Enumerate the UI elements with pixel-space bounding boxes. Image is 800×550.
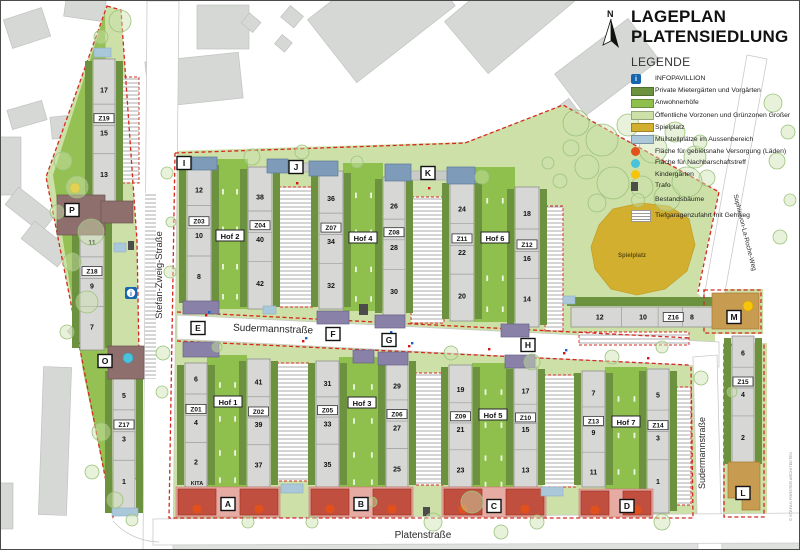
legend-swatch-rect-icon <box>631 87 655 97</box>
z-label: Z06 <box>391 411 403 418</box>
entry-dot <box>563 352 565 354</box>
house-number: 40 <box>256 237 264 244</box>
legend-item: Müllstellplätze im Aussenbereich <box>631 135 797 145</box>
building-strip-z01: 6Z0142 <box>177 363 215 487</box>
legend-swatch-tree-icon <box>631 193 655 207</box>
private-garden-strip <box>308 363 315 485</box>
tree-icon <box>351 156 363 168</box>
street-label: Platenstraße <box>395 530 452 541</box>
house-number: 37 <box>255 463 263 470</box>
building-strip-z02: 41Z023937 <box>239 359 278 487</box>
building-strip-z06: 29Z062725 <box>378 359 416 487</box>
private-garden-strip <box>473 367 480 485</box>
house-number: 8 <box>197 274 201 281</box>
building-strip-z19: 17Z191513 <box>85 59 123 207</box>
marker-c: C <box>487 500 501 513</box>
private-garden-strip <box>105 371 112 513</box>
north-label: N <box>607 9 614 19</box>
private-garden-strip <box>506 369 513 485</box>
house-number: 6 <box>741 350 745 357</box>
entry-dot <box>411 342 413 344</box>
svg-text:D: D <box>624 501 630 511</box>
credit-text: © STEFAN FORSTER ARCHITEKTEN <box>788 452 793 521</box>
house-number: 9 <box>90 284 94 291</box>
legend-item: Fläche für gebietsnahe Versorgung (Läden… <box>631 147 797 156</box>
title-block: LAGEPLAN PLATENSIEDLUNG LEGENDE iINFOPAV… <box>631 7 797 225</box>
legend-item-label: Trafo <box>655 182 671 190</box>
house-number: 27 <box>393 426 401 433</box>
house-number: 41 <box>255 380 263 387</box>
tree-icon <box>242 516 254 528</box>
legend-item: Fläche für Nachbarschaftstreff <box>631 159 797 168</box>
building-strip-z16: 1210Z168 <box>571 307 715 327</box>
house-number: 28 <box>390 245 398 252</box>
tree-icon <box>126 514 138 526</box>
legend-item-label: Fläche für gebietsnahe Versorgung (Läden… <box>655 148 786 156</box>
tree-icon <box>54 152 72 170</box>
svg-text:O: O <box>102 356 109 366</box>
retail-dot <box>521 505 530 514</box>
private-garden-strip <box>475 183 482 319</box>
tree-icon <box>461 491 483 513</box>
private-garden-strip <box>239 361 246 485</box>
marker-m: M <box>727 311 741 324</box>
tree-icon <box>563 140 579 156</box>
marker-p: P <box>65 204 79 217</box>
kindergarten-dot <box>743 301 753 311</box>
marker-o: O <box>98 355 112 368</box>
house-number: 7 <box>592 391 596 398</box>
svg-text:F: F <box>330 329 335 339</box>
z-label: Z03 <box>193 219 205 226</box>
tree-icon <box>166 217 176 227</box>
z-label: Z02 <box>253 409 265 416</box>
house-number: 21 <box>457 427 465 434</box>
building-strip-z07: 36Z073432 <box>311 171 351 309</box>
entry-dot <box>296 182 298 184</box>
tree-icon <box>588 194 606 212</box>
z-label: Z07 <box>325 225 337 232</box>
z-label: Z04 <box>254 223 266 230</box>
marker-h: H <box>521 339 535 352</box>
house-number: 12 <box>596 315 604 322</box>
legend-item: Trafo <box>631 182 797 191</box>
building-strip-z11: 24Z112220 <box>442 181 482 321</box>
marker-d: D <box>620 500 634 513</box>
private-garden-strip <box>271 361 278 485</box>
z-label: Z13 <box>588 418 600 425</box>
tree-icon <box>76 291 98 313</box>
private-garden-strip <box>311 173 318 307</box>
legend-swatch-circle-icon <box>631 147 655 156</box>
legend-swatch-small-icon <box>631 182 655 191</box>
svg-text:H: H <box>525 340 531 350</box>
marker-e: E <box>191 322 205 335</box>
marker-b: B <box>354 498 368 511</box>
legend-heading: LEGENDE <box>631 55 797 69</box>
tree-icon <box>656 341 668 353</box>
legend-item: Spielplatz <box>631 123 797 133</box>
z-label: Z18 <box>86 269 98 276</box>
tree-icon <box>542 157 554 169</box>
tree-icon <box>424 513 442 531</box>
legend-item: Tiefgaragenzufahrt mit Gehweg <box>631 210 797 222</box>
house-number: 34 <box>327 239 335 246</box>
house-number: 14 <box>523 297 531 304</box>
building-strip-z12: 18Z121614 <box>507 187 547 327</box>
svg-text:K: K <box>425 168 432 178</box>
tree-icon <box>161 167 173 179</box>
z-label: Z11 <box>457 236 468 243</box>
legend-item: Kindergärten <box>631 170 797 179</box>
z-label: Z15 <box>737 379 749 386</box>
tree-icon <box>586 124 618 156</box>
house-number: 2 <box>194 460 198 467</box>
house-number: 31 <box>324 381 332 388</box>
area-label-spielplatz: Spielplatz <box>618 253 646 259</box>
legend-item-label: Anwohnerhöfe <box>655 99 699 107</box>
legend-item-label: Private Mietergärten und Vorgärten <box>655 87 761 95</box>
private-garden-strip <box>179 165 186 303</box>
plan-title-line1: LAGEPLAN <box>631 7 797 27</box>
hof-label-hof1: Hof 1 <box>214 396 242 407</box>
hof-label-hof3: Hof 3 <box>348 397 376 408</box>
house-number: 5 <box>122 393 126 400</box>
building-strip-z15: 6Z1542 <box>724 336 762 466</box>
legend-item: Private Mietergärten und Vorgärten <box>631 87 797 97</box>
house-number: 22 <box>458 250 466 257</box>
svg-text:Hof 7: Hof 7 <box>617 418 636 427</box>
legend-swatch-rect-icon <box>631 123 655 133</box>
building-strip-z09: 19Z092123 <box>441 365 480 487</box>
private-garden-strip <box>507 189 514 325</box>
marker-f: F <box>326 328 340 341</box>
legend-item-label: Öffentliche Vorzonen und Grünzonen Große… <box>655 112 790 120</box>
entry-dot <box>208 311 210 313</box>
legend-item-label: Spielplatz <box>655 124 684 132</box>
private-garden-strip <box>378 361 385 485</box>
tree-icon <box>244 149 260 165</box>
private-garden-strip <box>442 183 449 319</box>
tree-icon <box>494 525 508 539</box>
building-strip-z10: 17Z101513 <box>506 367 545 487</box>
building-strip-z08: 26Z082830 <box>375 177 413 315</box>
tree-icon <box>109 10 131 32</box>
private-garden-strip <box>540 189 547 325</box>
tree-icon <box>563 110 589 136</box>
house-number: 15 <box>522 427 530 434</box>
head-building-k-east <box>447 167 475 184</box>
house-number: 39 <box>255 422 263 429</box>
tree-icon <box>94 30 108 44</box>
tree-icon <box>654 514 670 530</box>
z-label: Z14 <box>652 423 664 430</box>
house-number: 5 <box>656 392 660 399</box>
tree-icon <box>78 219 104 245</box>
area-label-kita: KITA <box>191 481 203 487</box>
tree-icon <box>156 346 170 360</box>
legend-item-label: Tiefgaragenzufahrt mit Gehweg <box>655 212 750 220</box>
svg-text:B: B <box>358 499 364 509</box>
entry-dot <box>408 345 410 347</box>
garden-strip-z16 <box>567 297 717 306</box>
entry-dot <box>205 314 207 316</box>
house-number: 12 <box>195 187 203 194</box>
svg-text:J: J <box>294 162 299 172</box>
svg-text:i: i <box>130 291 132 298</box>
svg-text:A: A <box>225 499 231 509</box>
private-garden-strip <box>538 369 545 485</box>
z-label: Z08 <box>388 230 400 237</box>
tree-icon <box>212 342 222 352</box>
z-label: Z05 <box>322 408 334 415</box>
svg-text:M: M <box>730 312 737 322</box>
house-number: 1 <box>656 479 660 486</box>
head-building-i <box>192 157 217 170</box>
legend-item: Öffentliche Vorzonen und Grünzonen Große… <box>631 111 797 121</box>
tree-icon <box>164 266 176 278</box>
house-number: 1 <box>122 479 126 486</box>
head-building-j-east <box>309 161 338 176</box>
tree-icon <box>575 155 599 179</box>
retail-row-d <box>579 489 653 517</box>
house-number: 6 <box>194 377 198 384</box>
street-label: Stefan-Zweig-Straße <box>154 231 165 319</box>
private-garden-strip <box>406 179 413 313</box>
retail-dot <box>193 505 202 514</box>
house-number: 17 <box>100 88 108 95</box>
private-garden-strip <box>574 373 581 485</box>
entry-dot <box>647 357 649 359</box>
plan-title-line2: PLATENSIEDLUNG <box>631 27 797 47</box>
legend-item-label: Kindergärten <box>655 171 694 179</box>
z-label: Z17 <box>118 422 130 429</box>
house-number: 24 <box>458 207 466 214</box>
hof-label-hof5: Hof 5 <box>479 409 507 420</box>
svg-text:Hof 3: Hof 3 <box>353 399 372 408</box>
marker-l: L <box>736 487 750 500</box>
legend-items: iINFOPAVILLIONPrivate Mietergärten und V… <box>631 74 797 222</box>
house-number: 30 <box>390 289 398 296</box>
entry-dot <box>488 348 490 350</box>
tree-icon <box>50 205 64 219</box>
tree-icon <box>530 515 544 529</box>
tree-icon <box>107 492 123 508</box>
tree-icon <box>63 253 81 271</box>
z-label: Z09 <box>455 414 467 421</box>
svg-text:G: G <box>386 335 393 345</box>
z-label: Z12 <box>521 242 533 249</box>
legend-swatch-info-icon: i <box>631 74 655 84</box>
tree-icon <box>66 176 88 198</box>
tree-icon <box>156 386 168 398</box>
entry-dot <box>428 187 430 189</box>
house-number: 4 <box>741 392 745 399</box>
hof-label-hof7: Hof 7 <box>612 416 640 427</box>
building-p-wing <box>101 201 133 223</box>
legend-item-label: INFOPAVILLION <box>655 75 705 83</box>
house-number: 9 <box>592 430 596 437</box>
tree-icon <box>773 230 787 244</box>
house-number: 26 <box>390 203 398 210</box>
private-garden-strip <box>105 216 112 348</box>
svg-text:E: E <box>195 323 201 333</box>
tree-icon <box>444 346 458 360</box>
tree-icon <box>605 350 619 364</box>
private-garden-strip <box>136 371 143 513</box>
house-number: 13 <box>522 468 530 475</box>
house-number: 8 <box>690 315 694 322</box>
legend-swatch-rect-icon <box>631 99 655 109</box>
entry-dot <box>302 340 304 342</box>
house-number: 25 <box>393 467 401 474</box>
house-number: 7 <box>90 324 94 331</box>
marker-k: K <box>421 167 435 180</box>
house-number: 15 <box>100 131 108 138</box>
house-number: 38 <box>256 194 264 201</box>
house-number: 23 <box>457 467 465 474</box>
tree-icon <box>524 354 540 370</box>
house-number: 33 <box>324 422 332 429</box>
house-number: 16 <box>523 256 531 263</box>
svg-text:C: C <box>491 501 497 511</box>
tree-icon <box>92 423 110 441</box>
tree-icon <box>553 174 567 188</box>
tree-icon <box>60 325 74 339</box>
building-strip-z05: 31Z053335 <box>308 361 347 487</box>
private-garden-strip <box>208 365 215 485</box>
svg-text:L: L <box>740 488 745 498</box>
nachbarschaftstreff-dot <box>123 353 133 363</box>
private-garden-strip <box>273 169 280 307</box>
private-garden-strip <box>724 338 731 464</box>
svg-text:Hof 2: Hof 2 <box>221 232 240 241</box>
head-building-k-west <box>385 164 411 181</box>
private-garden-strip <box>441 367 448 485</box>
infopavillion-icon: i <box>125 287 137 299</box>
hof-label-hof6: Hof 6 <box>481 232 509 243</box>
entry-dot <box>305 337 307 339</box>
tree-icon <box>694 371 708 385</box>
tree-icon <box>727 387 737 397</box>
marker-a: A <box>221 498 235 511</box>
private-garden-strip <box>116 61 123 205</box>
legend-item: Bestandsbäume <box>631 193 797 207</box>
z-label: Z10 <box>520 415 532 422</box>
svg-text:Hof 6: Hof 6 <box>486 234 505 243</box>
svg-text:I: I <box>183 158 185 168</box>
svg-text:Hof 5: Hof 5 <box>484 411 503 420</box>
house-number: 29 <box>393 383 401 390</box>
house-number: 18 <box>523 211 531 218</box>
private-garden-strip <box>670 371 677 511</box>
private-garden-strip <box>755 338 762 464</box>
house-number: 20 <box>458 293 466 300</box>
marker-g: G <box>382 334 396 347</box>
private-garden-strip <box>409 361 416 485</box>
legend-item: Anwohnerhöfe <box>631 99 797 109</box>
private-garden-strip <box>606 373 613 485</box>
svg-text:Hof 4: Hof 4 <box>354 234 374 243</box>
building-strip-z13: 7Z13911 <box>574 371 613 487</box>
house-number: 4 <box>194 420 198 427</box>
tree-icon <box>475 170 489 184</box>
z-label: Z19 <box>98 116 110 123</box>
tree-icon <box>306 516 318 528</box>
legend-swatch-rect-icon <box>631 135 655 145</box>
tree-icon <box>597 167 629 199</box>
retail-dot <box>326 505 335 514</box>
house-number: 10 <box>639 315 647 322</box>
house-number: 32 <box>327 283 335 290</box>
house-number: 3 <box>656 436 660 443</box>
svg-text:P: P <box>69 205 75 215</box>
legend-item-label: Bestandsbäume <box>655 196 704 204</box>
retail-dot <box>255 505 264 514</box>
tree-icon <box>295 145 309 159</box>
legend-swatch-circle-icon <box>631 170 655 179</box>
house-number: 35 <box>324 462 332 469</box>
house-number: 42 <box>256 281 264 288</box>
house-number: 3 <box>122 437 126 444</box>
house-number: 17 <box>522 389 530 396</box>
legend-item-label: Fläche für Nachbarschaftstreff <box>655 159 746 167</box>
tree-icon <box>85 465 99 479</box>
marker-i: I <box>177 157 191 170</box>
legend-swatch-hatch-icon <box>631 210 655 222</box>
house-number: 11 <box>590 469 598 476</box>
svg-text:Hof 1: Hof 1 <box>219 398 238 407</box>
z-label: Z16 <box>668 314 680 321</box>
house-number: 13 <box>100 172 108 179</box>
retail-dot <box>388 505 397 514</box>
street-label: Sudermannstraße <box>697 417 707 489</box>
hof-label-hof2: Hof 2 <box>216 230 244 241</box>
head-building-j-west <box>267 159 288 173</box>
private-garden-strip <box>375 179 382 313</box>
legend-item: iINFOPAVILLION <box>631 74 797 84</box>
marker-j: J <box>289 161 303 174</box>
house-number: 36 <box>327 196 335 203</box>
z-label: Z01 <box>190 406 202 413</box>
private-garden-strip <box>177 365 184 485</box>
legend-swatch-rect-icon <box>631 111 655 121</box>
entry-dot <box>565 349 567 351</box>
house-number: 19 <box>457 387 465 394</box>
house-number: 2 <box>741 435 745 442</box>
legend-item-label: Müllstellplätze im Aussenbereich <box>655 136 753 144</box>
lageplan-canvas: 17Z19151311Z18975Z173112Z0310838Z0440423… <box>0 0 800 550</box>
building-strip-z04: 38Z044042 <box>240 167 280 309</box>
retail-dot <box>591 506 600 515</box>
house-number: 10 <box>195 233 203 240</box>
hof-label-hof4: Hof 4 <box>349 232 377 243</box>
legend-swatch-circle-icon <box>631 159 655 168</box>
building-strip-z03: 12Z03108 <box>179 163 219 305</box>
private-garden-strip <box>340 363 347 485</box>
